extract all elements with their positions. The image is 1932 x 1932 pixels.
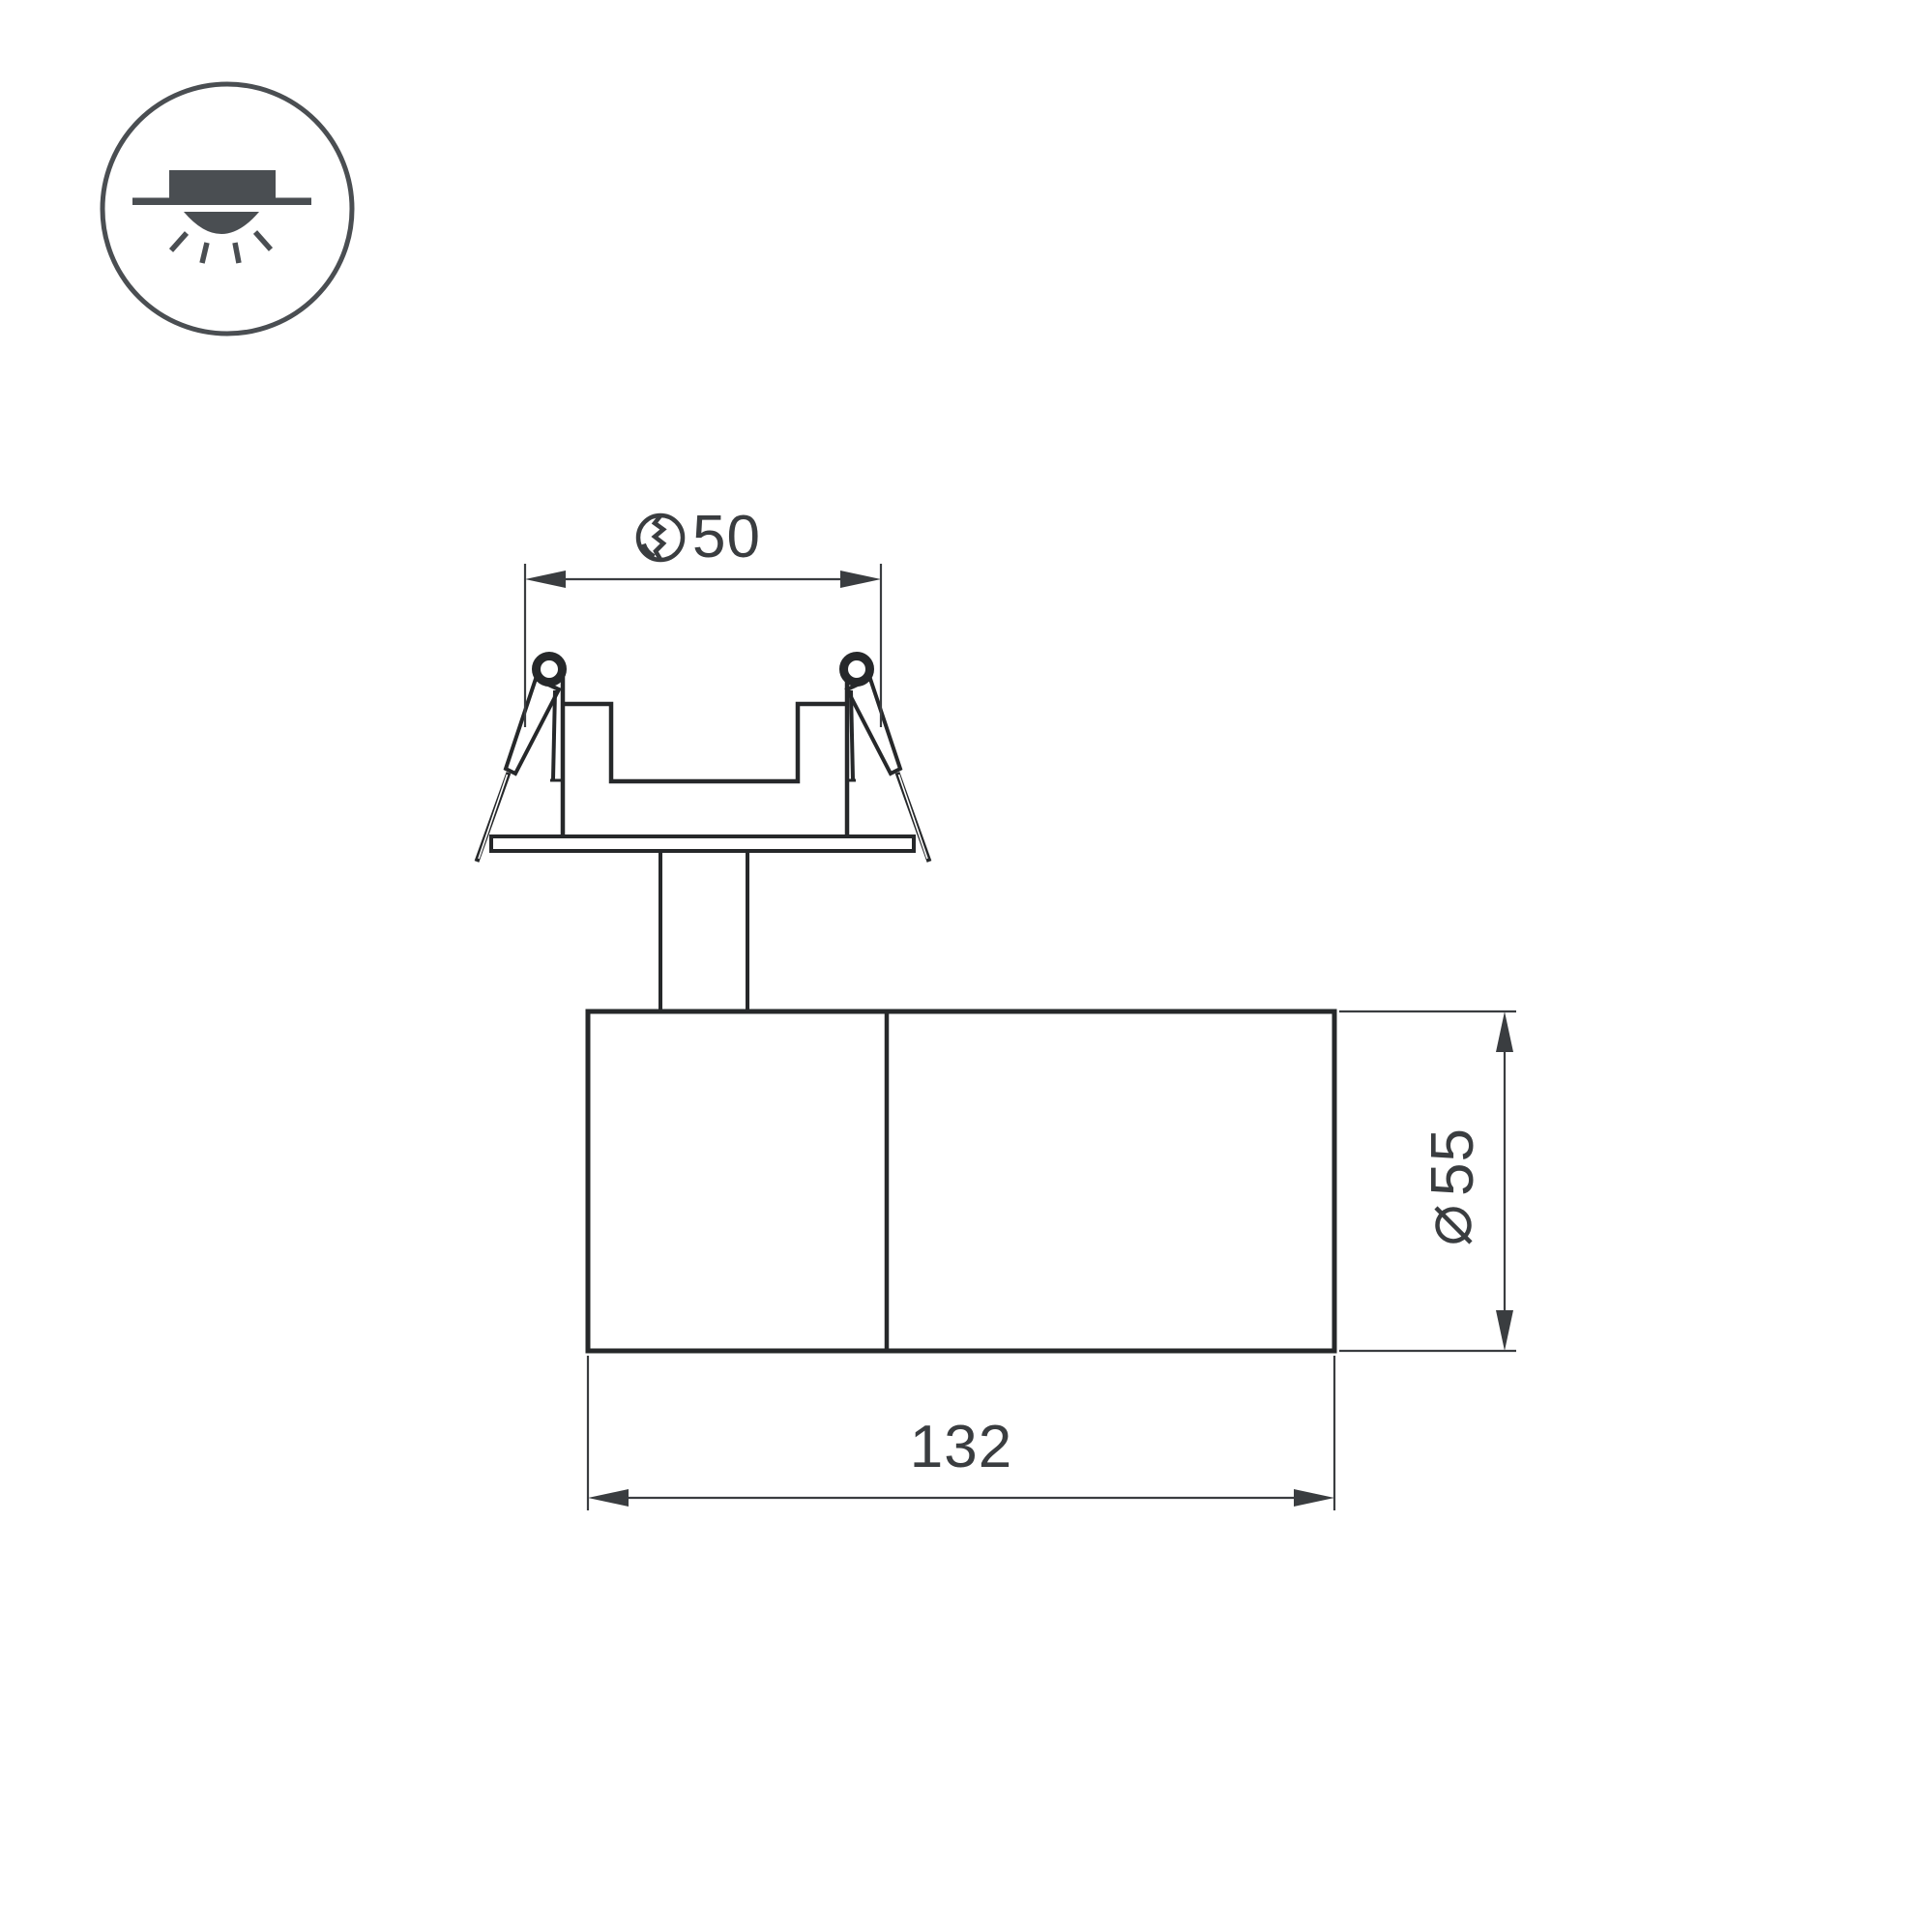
hole-cut-icon: [635, 512, 686, 563]
arrowhead-down: [1496, 1310, 1513, 1351]
spring-clip-left: [477, 657, 563, 863]
clip-leg-right: [851, 690, 853, 779]
length-dimension-label: 132: [910, 1418, 1012, 1478]
fixture-body: [588, 1011, 1334, 1351]
clip-pivot-right: [844, 657, 870, 683]
arrowhead-left: [525, 571, 566, 588]
trim-flange: [491, 836, 914, 851]
clip-arm-left: [506, 679, 559, 774]
length-value: 132: [910, 1418, 1012, 1478]
mounting-ring-housing: [563, 677, 847, 836]
technical-drawing-page: 50 55 132: [0, 0, 1932, 1932]
diameter-icon: [1431, 1203, 1476, 1247]
stem: [660, 851, 747, 1011]
clip-arm-right: [847, 679, 900, 774]
fixture-drawing: [0, 0, 1932, 1932]
cutout-value: 50: [692, 508, 761, 568]
arrowhead-right: [1294, 1489, 1334, 1507]
clip-pivot-left: [537, 657, 563, 683]
clip-leg-left: [553, 690, 555, 779]
arrowhead-up: [1496, 1011, 1513, 1052]
spring-clip-right: [844, 657, 930, 863]
arrowhead-right: [840, 571, 881, 588]
arrowhead-left: [588, 1489, 629, 1507]
body-outline: [588, 1011, 1334, 1351]
diameter-dimension-label: 55: [1423, 1127, 1483, 1247]
diameter-value: 55: [1423, 1127, 1483, 1196]
cutout-dimension-label: 50: [635, 508, 761, 568]
